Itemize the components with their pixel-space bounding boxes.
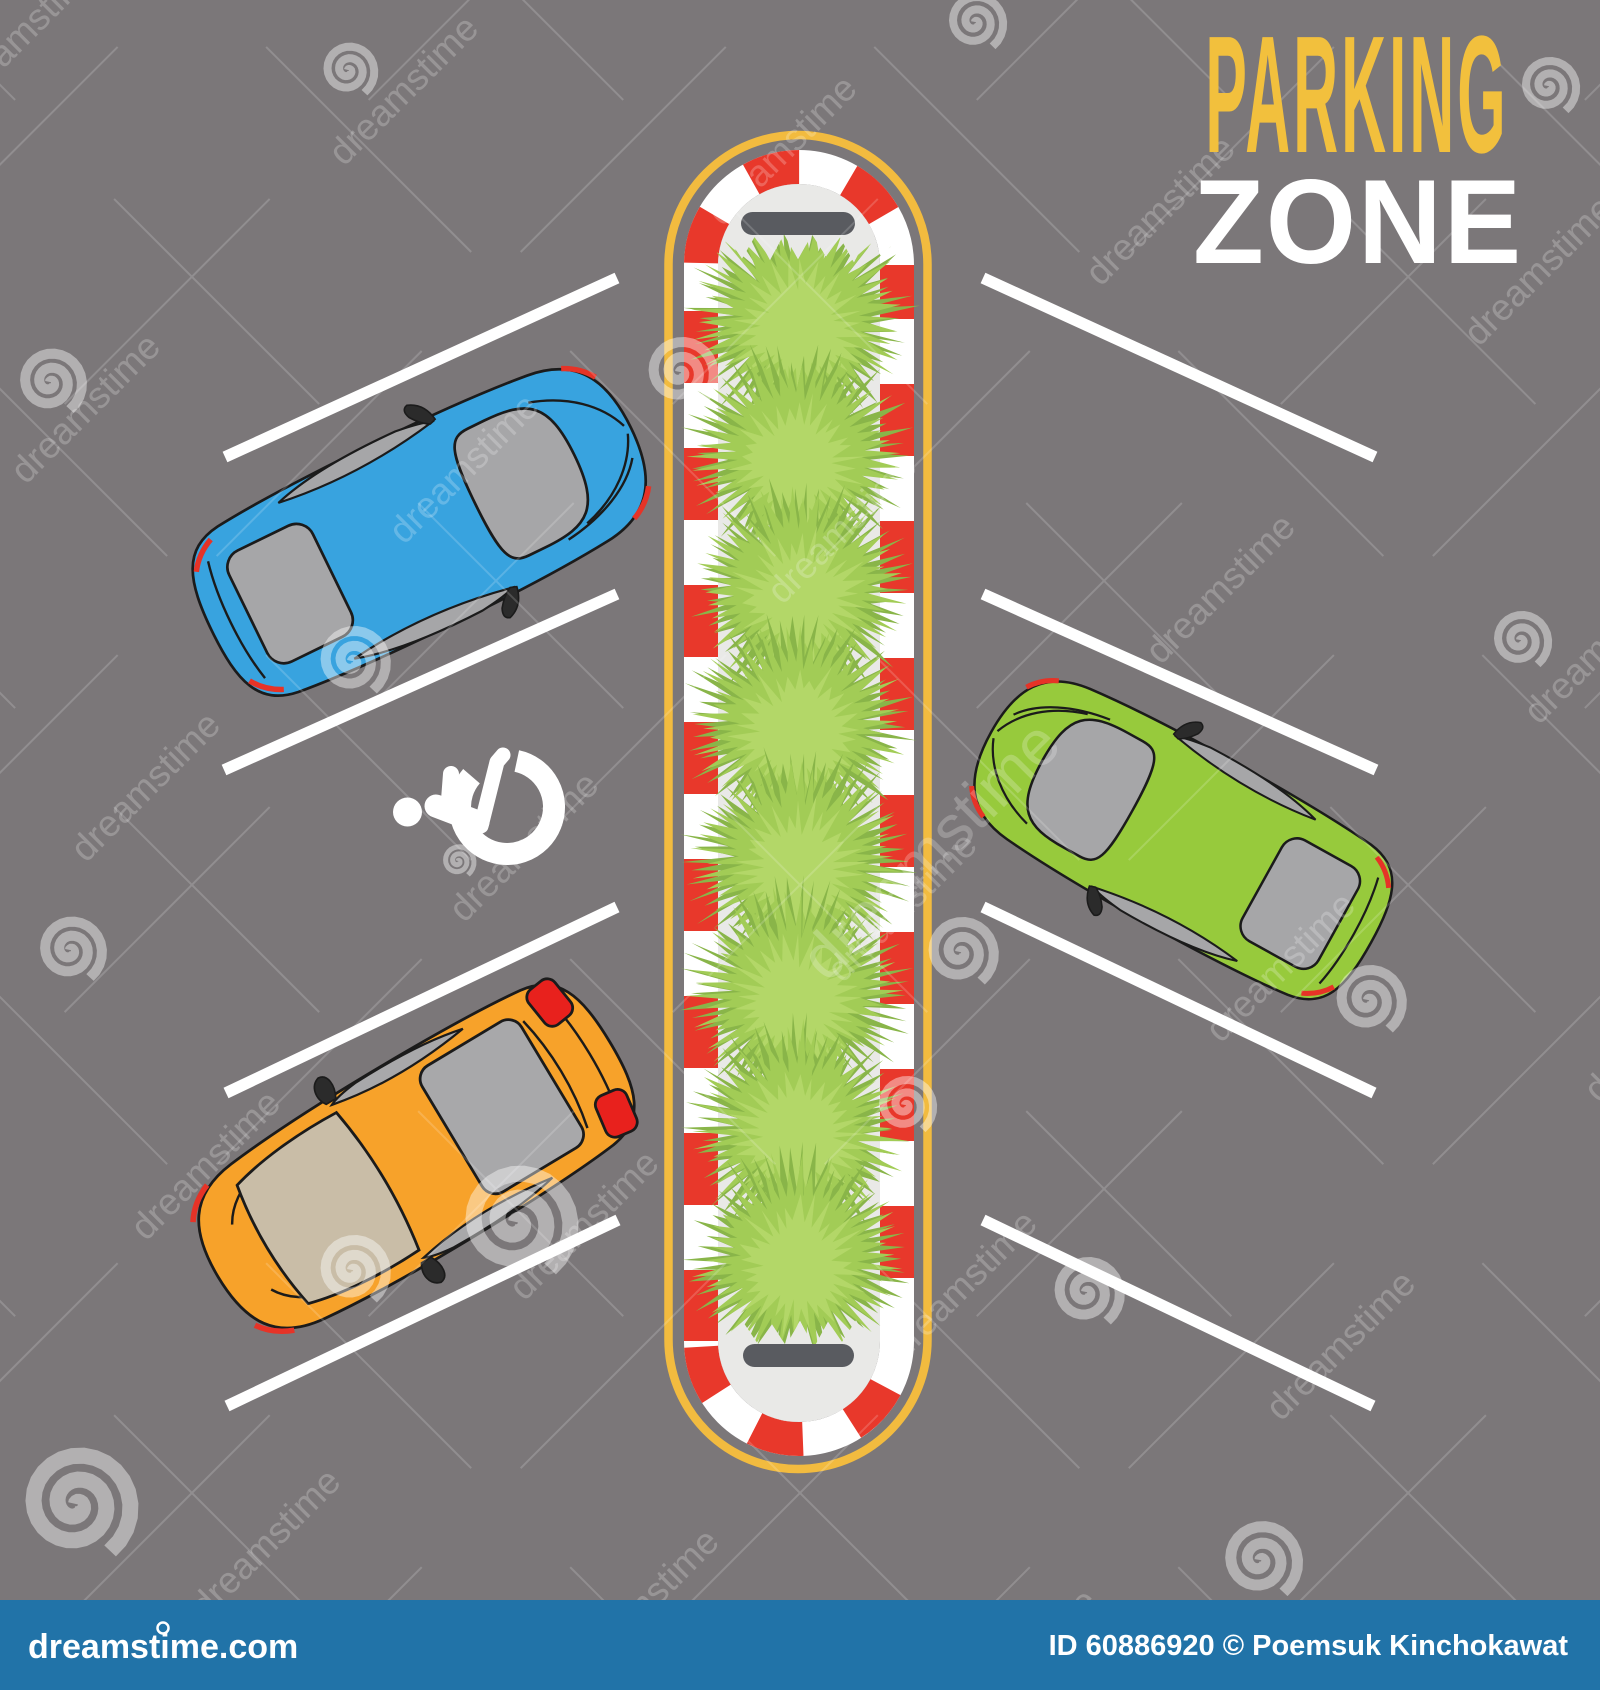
svg-text:ZONE: ZONE [1193, 155, 1523, 289]
svg-text:ID 60886920 © Poemsuk Kinchoka: ID 60886920 © Poemsuk Kinchokawat [1049, 1630, 1569, 1662]
